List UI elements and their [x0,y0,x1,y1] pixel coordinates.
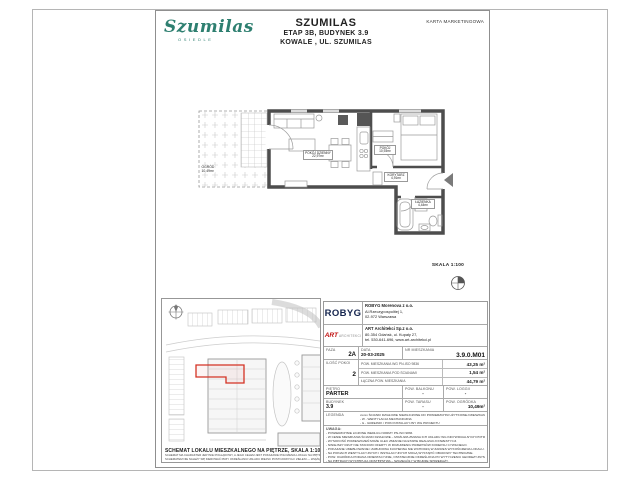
subtitle-etap: ETAP 3B, BUDYNEK 3.9 [216,30,436,37]
site-greenery [273,361,299,426]
floor-plan-svg [196,96,466,246]
card-frame: Szumilas OSIEDLE SZUMILAS ETAP 3B, BUDYN… [155,10,490,468]
site-plan-box: SCHEMAT LOKALU MIESZKALNEGO NA PIĘTRZE, … [161,298,321,463]
legend-row: LEGENDA xxxxx ŚCIANKI DZIAŁOWE NIEWLICZO… [324,411,487,425]
faza-cell: FAZA 2A [324,347,358,359]
architect-logo: ART ARCHITEKCI [324,325,362,346]
nr-cell: NR MIESZKANIA 3.9.0.M01 [402,347,487,359]
room-label-bedroom: POKÓJ 10,93m² [374,145,396,155]
garden-area-cell: POW. OGRÓDKA 10,49m² [443,399,487,411]
legend-lines: xxxxx ŚCIANKI DZIAŁOWE NIEWLICZONE DO PO… [358,412,487,425]
nr-value: 3.9.0.M01 [405,352,485,359]
areas-row: ILOŚĆ POKOI 2 POW. MIESZKANIA WG PN-ISO … [324,359,487,385]
floor-value: PARTER [326,391,400,397]
shaft-block [338,115,348,125]
architect-addr2: tel. 530-641-696, www.art-architekci.pl [365,337,485,342]
info-table: ROBYG ROBYG Morenova z o.o. Al.Rzeczypos… [323,301,488,463]
room-label-living: POKÓJ DZIENNY 22,97m² [303,150,333,160]
site-fineprint-2: SCHEMATEM NIE NALEŻY SIĘ KIEROWAĆ PRZY O… [165,458,317,462]
developer-info: ROBYG Morenova z o.o. Al.Rzeczypospolite… [362,302,487,324]
areas-cell: POW. MIESZKANIA WG PN-ISO 9836 43,25 m² … [358,360,487,385]
data-value: 20-03-2025 [361,352,400,357]
area-row-2: POW. MIESZKANIA POD ŚCIANAMI 1,54 m² [359,368,487,376]
garden-label: OGRÓD 10,49m² [201,165,215,173]
area-row-3: ŁĄCZNA POW. MIESZKANIA 44,79 m² [359,377,487,385]
site-compass-icon [169,305,184,320]
marketing-card-page: Szumilas OSIEDLE SZUMILAS ETAP 3B, BUDYN… [0,0,640,480]
area3-value: 44,79 m² [442,378,487,385]
balcony-cell: POW. BALKONU - [402,386,443,398]
rooms-count-value: 2 [326,371,356,378]
floor-row: PIĘTRO PARTER POW. BALKONU - POW. LOGGII… [324,385,487,398]
garden-area [199,111,269,187]
area1-value: 43,25 m² [442,360,487,368]
rooms-count-cell: ILOŚĆ POKOI 2 [324,360,358,385]
page-title: SZUMILAS [216,17,436,29]
loggia-value: - [446,391,485,396]
subtitle-address: KOWALE , UL. SZUMILAS [216,39,436,46]
area-row-1: POW. MIESZKANIA WG PN-ISO 9836 43,25 m² [359,360,487,368]
floor-cell: PIĘTRO PARTER [324,386,402,398]
terrace-cell: POW. TARASU - [402,399,443,411]
legend-label-cell: LEGENDA [324,412,358,425]
room-label-bathroom: ŁAZIENKA 4,44m² [411,199,435,209]
area2-value: 1,54 m² [442,369,487,376]
building-cell: BUDYNEK 3.9 [324,399,402,411]
data-cell: DATA 20-03-2025 [358,347,402,359]
terrace-value: - [405,404,441,409]
balcony-value: - [405,391,441,396]
uwaga-row: UWAGA: - POWIERZCHNIE LICZONE WEDŁUG NOR… [324,425,487,462]
architect-row: ART ARCHITEKCI ART Architekci Sp.z o.o. … [324,324,487,346]
developer-addr2: 02-972 Warszawa [365,314,485,319]
building-row: BUDYNEK 3.9 POW. TARASU - POW. OGRÓDKA 1… [324,398,487,411]
scale-label: SKALA 1:100 [396,263,464,268]
site-plan-svg [162,299,321,447]
north-compass-icon [448,273,468,293]
developer-row: ROBYG ROBYG Morenova z o.o. Al.Rzeczypos… [324,302,487,324]
building-value: 3.9 [326,404,400,410]
site-caption-block: SCHEMAT LOKALU MIESZKALNEGO NA PIĘTRZE, … [162,447,320,462]
garden-area-value: 10,49m² [446,404,485,409]
phase-row: FAZA 2A DATA 20-03-2025 NR MIESZKANIA 3.… [324,346,487,359]
architect-info: ART Architekci Sp.z o.o. 80-354 Gdańsk, … [362,325,487,346]
faza-value: 2A [326,352,356,358]
room-label-corridor: KORYTARZ 4,91m² [384,172,408,182]
developer-logo: ROBYG [324,302,362,324]
apartment-walls [269,111,443,233]
loggia-cell: POW. LOGGII - [443,386,487,398]
doc-type-label: KARTA MARKETINGOWA [426,19,484,24]
